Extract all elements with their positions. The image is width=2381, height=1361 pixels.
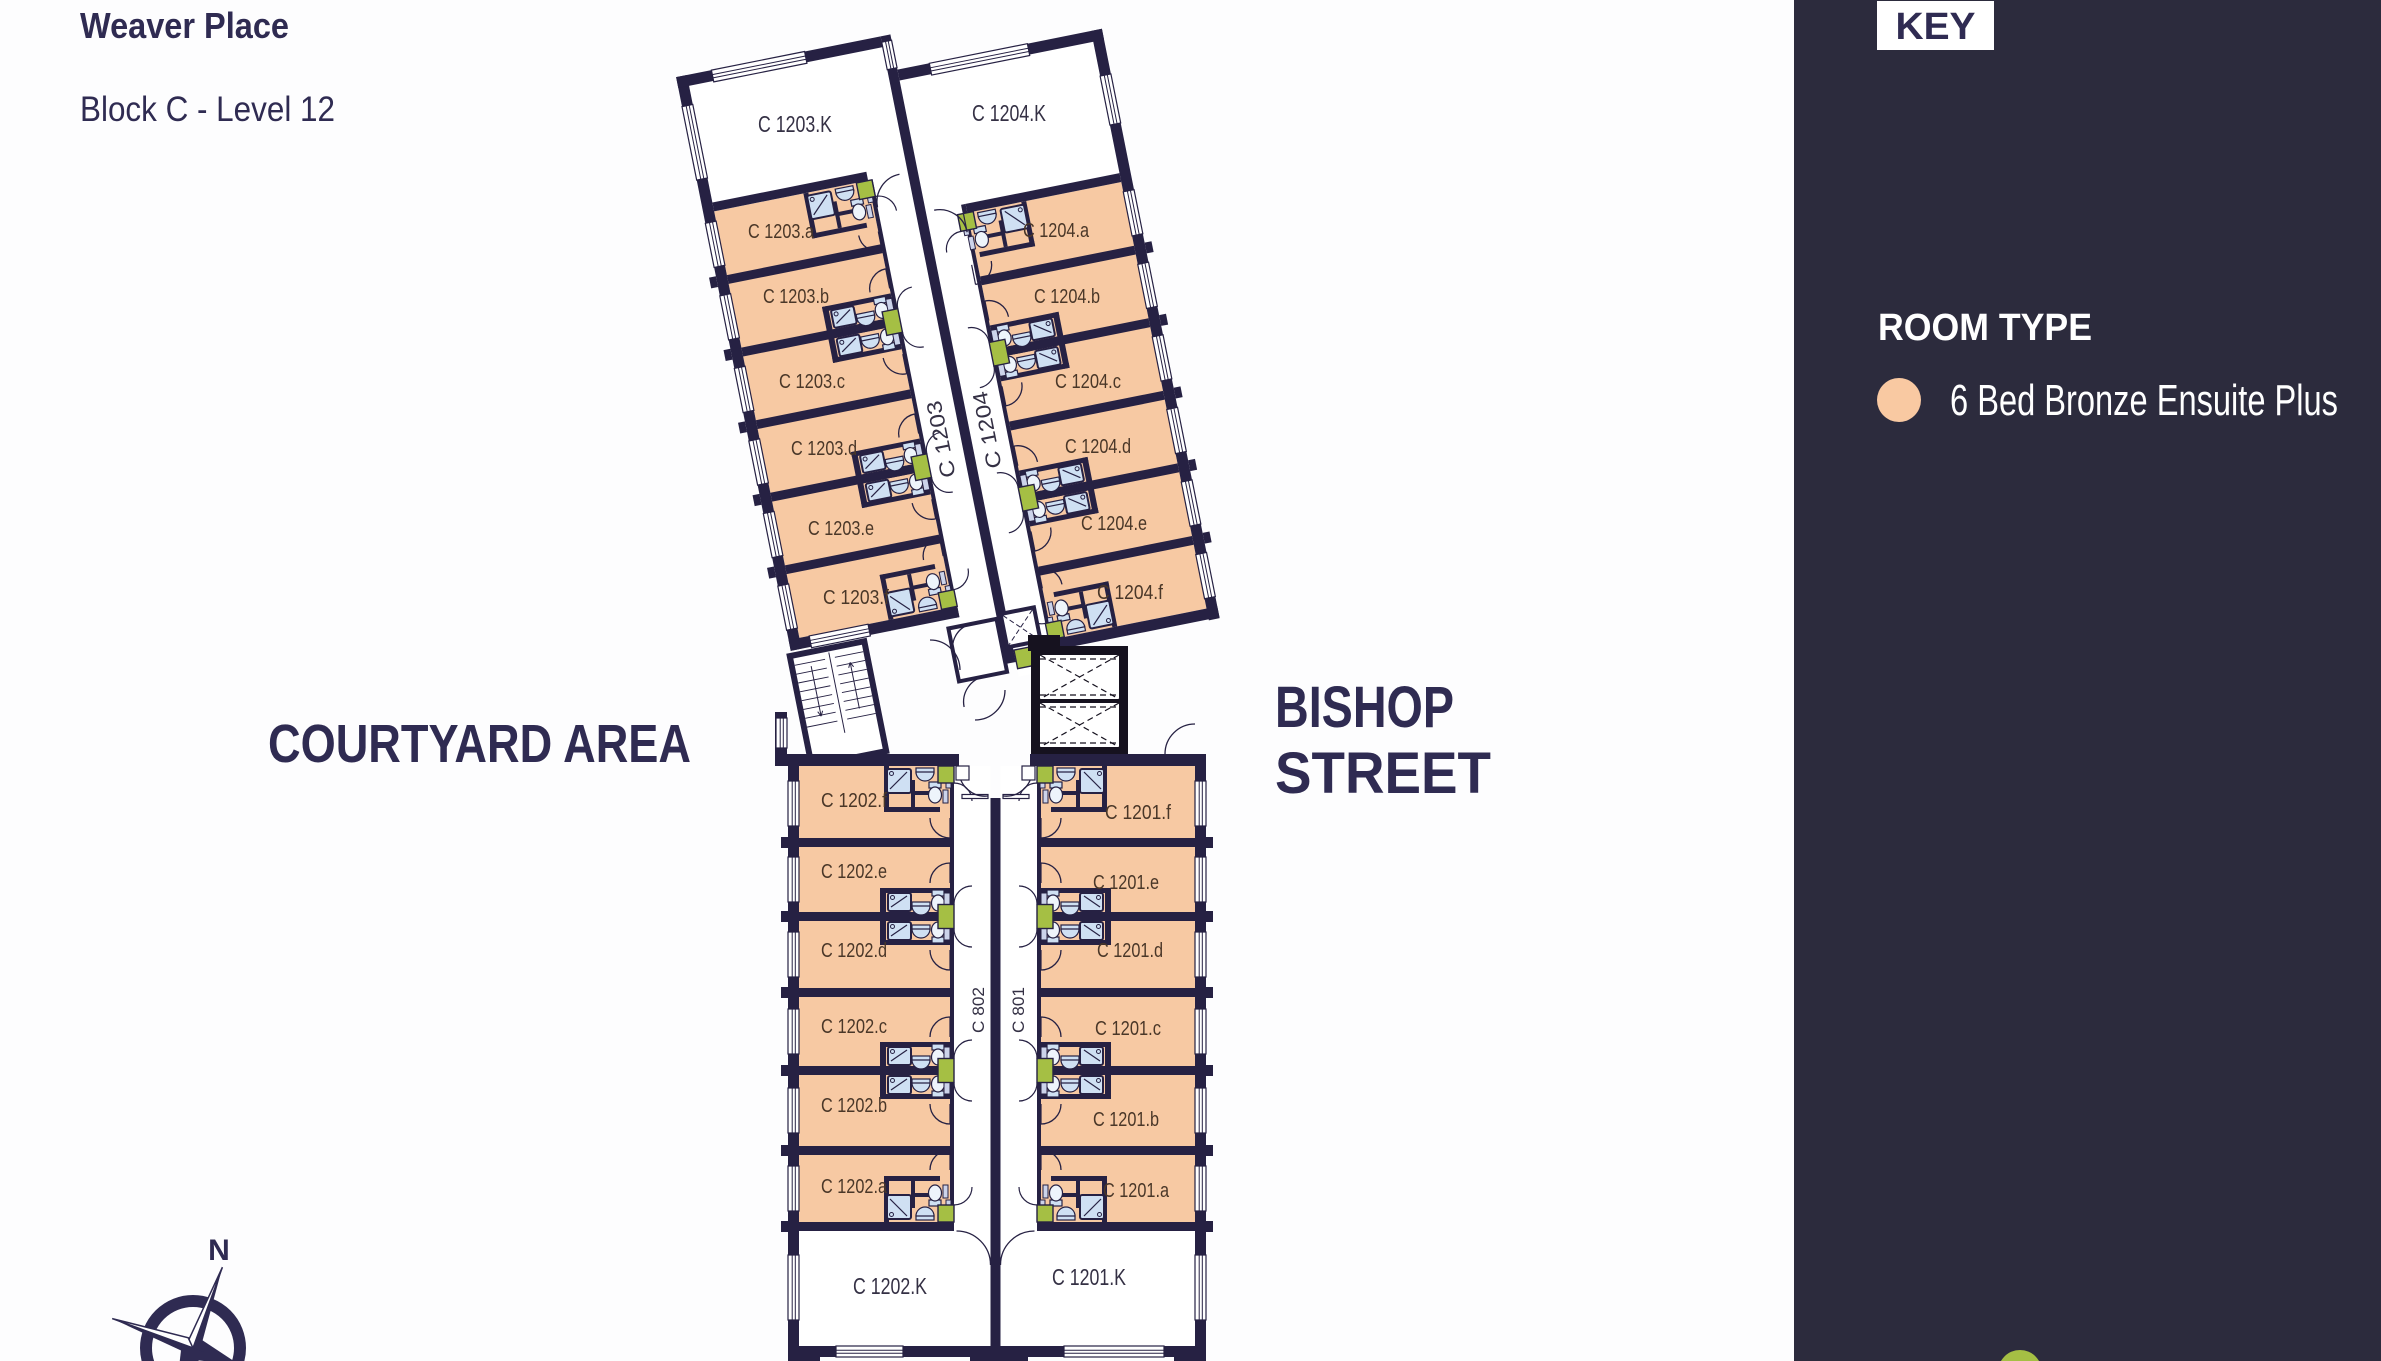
svg-text:STREET: STREET	[1275, 741, 1491, 806]
svg-text:C 1203.f: C 1203.f	[823, 587, 889, 609]
svg-text:C 1204.a: C 1204.a	[1023, 220, 1090, 242]
svg-text:C 1203.e: C 1203.e	[808, 518, 874, 540]
svg-text:C 1201.b: C 1201.b	[1093, 1109, 1159, 1131]
svg-text:C 1201.c: C 1201.c	[1095, 1018, 1161, 1040]
svg-text:C 1202.c: C 1202.c	[821, 1016, 887, 1038]
svg-text:C 1201.f: C 1201.f	[1105, 802, 1171, 824]
svg-text:KEY: KEY	[1896, 6, 1976, 48]
svg-text:C 1203.K: C 1203.K	[758, 111, 833, 137]
svg-text:C 1202.d: C 1202.d	[821, 940, 887, 962]
svg-text:6 Bed Bronze Ensuite Plus: 6 Bed Bronze Ensuite Plus	[1950, 376, 2338, 425]
svg-text:BISHOP: BISHOP	[1275, 675, 1454, 740]
svg-text:C 1201.e: C 1201.e	[1093, 872, 1159, 894]
svg-text:C 1204.b: C 1204.b	[1034, 286, 1100, 308]
svg-text:C 1201.a: C 1201.a	[1103, 1180, 1170, 1202]
svg-text:COURTYARD AREA: COURTYARD AREA	[268, 714, 691, 774]
svg-text:C 1201.K: C 1201.K	[1052, 1264, 1127, 1290]
svg-text:C 1202.f: C 1202.f	[821, 790, 887, 812]
svg-text:C 1201.d: C 1201.d	[1097, 940, 1163, 962]
svg-text:C 1203.c: C 1203.c	[779, 371, 845, 393]
svg-text:C 1204.d: C 1204.d	[1065, 436, 1131, 458]
svg-text:C 1203.d: C 1203.d	[791, 438, 857, 460]
svg-text:C 1204.c: C 1204.c	[1055, 371, 1121, 393]
svg-text:ROOM TYPE: ROOM TYPE	[1878, 307, 2092, 349]
svg-text:C 1203.a: C 1203.a	[748, 221, 815, 243]
svg-text:C 1204.f: C 1204.f	[1097, 582, 1163, 604]
svg-text:C 1204.e: C 1204.e	[1081, 513, 1147, 535]
svg-text:C 1202.K: C 1202.K	[853, 1273, 928, 1299]
svg-text:C 1203.b: C 1203.b	[763, 286, 829, 308]
svg-text:Block C - Level 12: Block C - Level 12	[80, 90, 335, 129]
svg-text:N: N	[208, 1234, 230, 1267]
svg-text:C 1202.e: C 1202.e	[821, 861, 887, 883]
svg-text:C 801: C 801	[1009, 987, 1028, 1033]
svg-text:C 1202.a: C 1202.a	[821, 1176, 888, 1198]
svg-text:C 802: C 802	[969, 987, 988, 1033]
svg-text:C 1204.K: C 1204.K	[972, 100, 1047, 126]
svg-text:Weaver Place: Weaver Place	[80, 5, 289, 46]
svg-text:C 1202.b: C 1202.b	[821, 1095, 887, 1117]
